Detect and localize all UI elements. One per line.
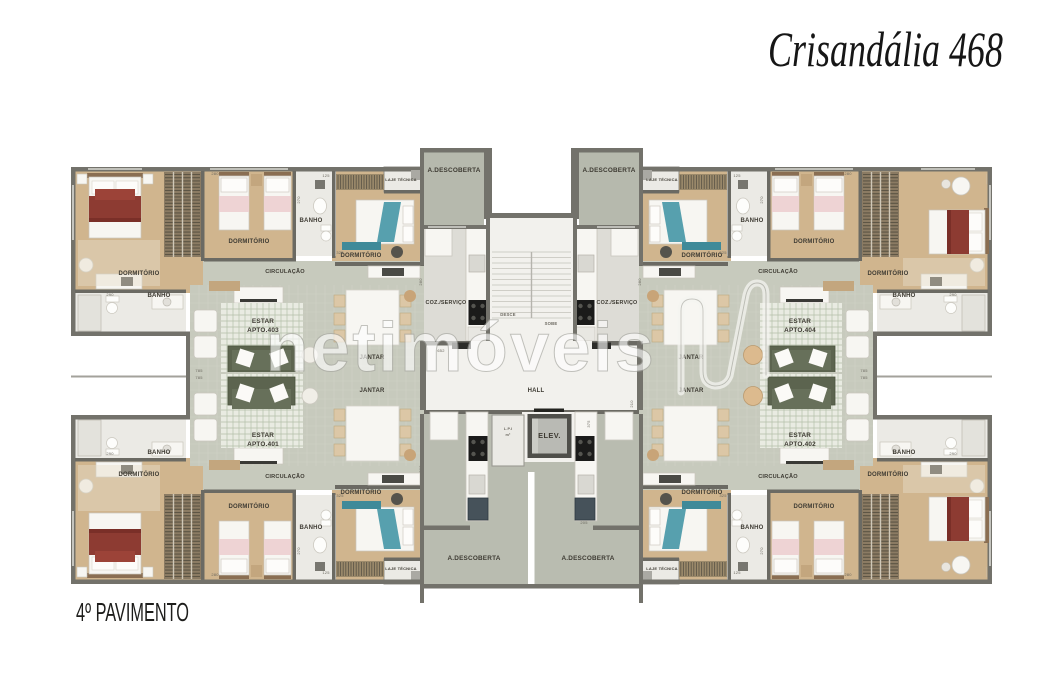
svg-text:BANHO: BANHO [741,525,764,531]
svg-text:COZ./SERVIÇO: COZ./SERVIÇO [597,300,638,306]
svg-text:ELEV.: ELEV. [538,431,561,440]
svg-text:DORMITÓRIO: DORMITÓRIO [229,502,270,510]
svg-text:DORMITÓRIO: DORMITÓRIO [341,251,382,259]
svg-text:125: 125 [322,570,330,575]
svg-text:LAJE TÉCNICA: LAJE TÉCNICA [646,566,678,571]
svg-text:375: 375 [586,420,591,428]
svg-text:L.P.I: L.P.I [504,427,513,431]
svg-text:netimóveis: netimóveis [266,308,657,386]
svg-text:BANHO: BANHO [300,218,323,224]
svg-text:785: 785 [195,375,203,380]
svg-text:BANHO: BANHO [893,293,916,299]
svg-text:A.DESCOBERTA: A.DESCOBERTA [447,555,500,562]
svg-text:DORMITÓRIO: DORMITÓRIO [794,237,835,245]
svg-text:DORMITÓRIO: DORMITÓRIO [868,269,909,277]
svg-text:CIRCULAÇÃO: CIRCULAÇÃO [758,473,798,480]
svg-text:290: 290 [106,451,114,456]
svg-text:DORMITÓRIO: DORMITÓRIO [682,251,723,259]
svg-text:DORMITÓRIO: DORMITÓRIO [682,488,723,496]
svg-text:CIRCULAÇÃO: CIRCULAÇÃO [265,268,305,275]
svg-text:CIRCULAÇÃO: CIRCULAÇÃO [265,473,305,480]
svg-text:785: 785 [860,375,868,380]
svg-text:DORMITÓRIO: DORMITÓRIO [341,488,382,496]
svg-text:LAJE TÉCNICA: LAJE TÉCNICA [385,177,417,182]
svg-text:290: 290 [949,451,957,456]
svg-text:ESTAR: ESTAR [789,318,811,325]
svg-text:DORMITÓRIO: DORMITÓRIO [119,269,160,277]
svg-text:DORMITÓRIO: DORMITÓRIO [868,470,909,478]
svg-text:COZ./SERVIÇO: COZ./SERVIÇO [426,300,467,306]
svg-text:BANHO: BANHO [148,450,171,456]
svg-text:JANTAR: JANTAR [359,388,385,394]
svg-text:LAJE TÉCNICA: LAJE TÉCNICA [646,177,678,182]
svg-text:325: 325 [336,493,344,498]
svg-text:270: 270 [296,196,301,204]
svg-text:125: 125 [322,173,330,178]
svg-text:DORMITÓRIO: DORMITÓRIO [119,470,160,478]
svg-text:290: 290 [949,292,957,297]
svg-text:DORMITÓRIO: DORMITÓRIO [229,237,270,245]
svg-text:BANHO: BANHO [148,293,171,299]
svg-text:270: 270 [759,196,764,204]
svg-text:BANHO: BANHO [893,450,916,456]
svg-text:125: 125 [733,173,741,178]
svg-text:280: 280 [844,572,852,577]
svg-text:DORMITÓRIO: DORMITÓRIO [794,502,835,510]
svg-text:m²: m² [505,433,511,437]
svg-text:LAJE TÉCNICA: LAJE TÉCNICA [385,566,417,571]
svg-text:270: 270 [296,547,301,555]
svg-text:210: 210 [629,400,634,408]
svg-text:A.DESCOBERTA: A.DESCOBERTA [427,167,480,174]
svg-text:CIRCULAÇÃO: CIRCULAÇÃO [758,268,798,275]
svg-text:270: 270 [759,547,764,555]
svg-text:A.DESCOBERTA: A.DESCOBERTA [561,555,614,562]
svg-text:290: 290 [106,292,114,297]
svg-text:205: 205 [580,520,588,525]
svg-text:325: 325 [336,250,344,255]
svg-text:280: 280 [637,278,642,286]
svg-text:280: 280 [844,171,852,176]
svg-text:A.DESCOBERTA: A.DESCOBERTA [582,167,635,174]
svg-text:ESTAR: ESTAR [252,432,274,439]
svg-text:ESTAR: ESTAR [789,432,811,439]
svg-text:280: 280 [418,278,423,286]
svg-text:APTO.404: APTO.404 [784,327,816,334]
svg-text:APTO.401: APTO.401 [247,441,279,448]
svg-text:325: 325 [719,493,727,498]
svg-text:Crisandália 468: Crisandália 468 [768,21,1003,77]
svg-text:280: 280 [211,572,219,577]
svg-text:BANHO: BANHO [741,218,764,224]
svg-text:125: 125 [733,570,741,575]
svg-text:APTO.402: APTO.402 [784,441,816,448]
svg-text:280: 280 [211,171,219,176]
svg-text:HALL: HALL [528,388,545,394]
svg-text:325: 325 [719,250,727,255]
svg-text:BANHO: BANHO [300,525,323,531]
svg-text:4º PAVIMENTO: 4º PAVIMENTO [76,597,189,627]
